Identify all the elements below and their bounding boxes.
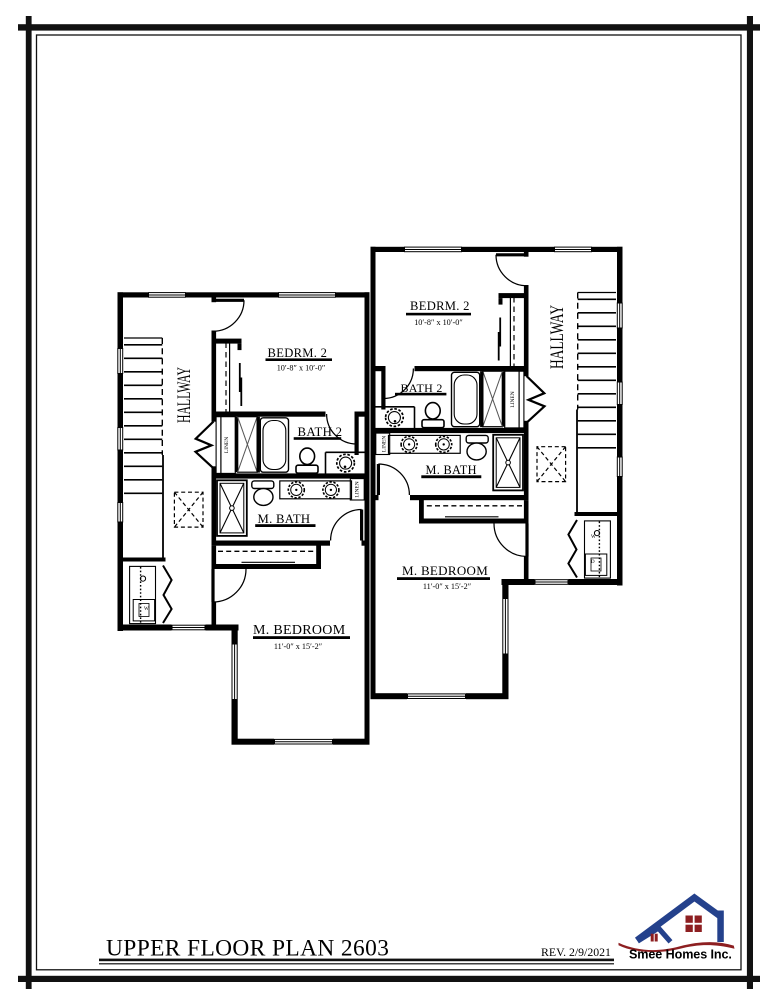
svg-text:BEDRM. 2: BEDRM. 2 <box>268 346 328 360</box>
svg-text:BEDRM. 2: BEDRM. 2 <box>410 299 470 313</box>
svg-text:BATH 2: BATH 2 <box>298 425 343 439</box>
svg-text:LINEN: LINEN <box>224 437 230 453</box>
svg-text:11′-0″ x 15′-2″: 11′-0″ x 15′-2″ <box>274 642 322 651</box>
svg-text:REV. 2/9/2021: REV. 2/9/2021 <box>541 945 611 959</box>
svg-text:LINEN: LINEN <box>382 436 388 452</box>
svg-text:M. BEDROOM: M. BEDROOM <box>253 623 346 638</box>
svg-text:Smee Homes Inc.: Smee Homes Inc. <box>629 948 732 962</box>
svg-text:10′-8″ x 10′-0″: 10′-8″ x 10′-0″ <box>414 318 463 327</box>
svg-text:LINEN: LINEN <box>510 391 516 407</box>
svg-text:M. BEDROOM: M. BEDROOM <box>402 563 488 578</box>
svg-text:M. BATH: M. BATH <box>426 463 477 477</box>
svg-text:HALLWAY: HALLWAY <box>174 367 195 423</box>
svg-text:HALLWAY: HALLWAY <box>547 305 568 369</box>
svg-text:UPPER FLOOR PLAN 2603: UPPER FLOOR PLAN 2603 <box>106 936 389 962</box>
svg-text:11′-0″ x 15′-2″: 11′-0″ x 15′-2″ <box>423 582 471 591</box>
svg-text:D: D <box>591 560 595 565</box>
svg-text:W: W <box>591 535 596 540</box>
svg-text:W: W <box>144 607 149 612</box>
svg-text:M. BATH: M. BATH <box>258 512 311 526</box>
svg-text:10′-8″ x 10′-0″: 10′-8″ x 10′-0″ <box>277 364 326 373</box>
svg-text:LINEN: LINEN <box>355 481 361 497</box>
